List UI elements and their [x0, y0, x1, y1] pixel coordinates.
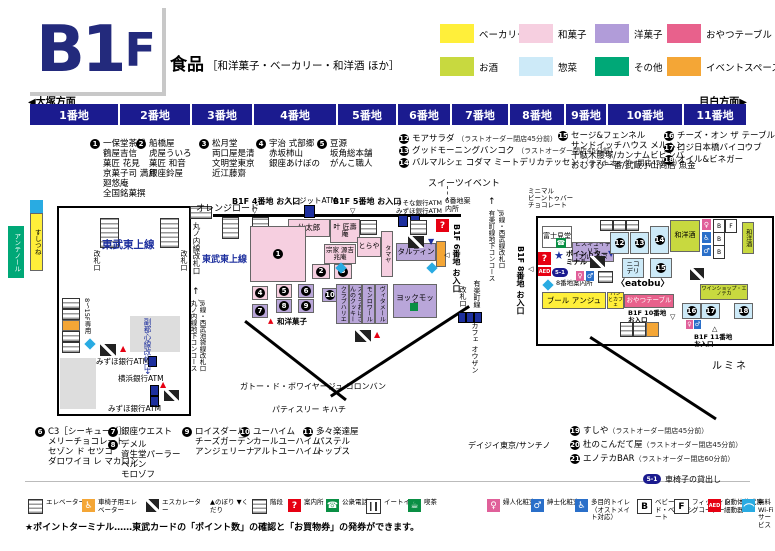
- up-arrow-icon: ↑: [488, 198, 496, 207]
- yurakucho-line-label: 有楽町線: [472, 280, 481, 308]
- escalator-step-icon: [222, 217, 239, 239]
- wifi-icon: [742, 499, 755, 512]
- service-area: [60, 358, 96, 409]
- info-6-label: 6番地案内所: [445, 197, 477, 213]
- yogashi-swatch: [595, 24, 629, 43]
- map-badge-10: 10: [325, 290, 335, 300]
- badge-12: 12: [399, 134, 409, 144]
- takeout-strip: [30, 200, 43, 214]
- down-arrow-icon: ↓: [144, 368, 152, 377]
- banchi-1[interactable]: 1番地: [30, 104, 118, 125]
- gate-icon: [466, 312, 474, 323]
- men-toilet-icon: ♂: [694, 320, 701, 329]
- escalator-icon: [146, 499, 159, 512]
- sweets-event-label: スイーツイベント: [428, 176, 500, 189]
- legend-women: ♀婦人化粧室: [487, 499, 536, 512]
- legend-sake: お酒: [440, 57, 519, 76]
- men-toilet-icon: ♂: [586, 271, 594, 281]
- map-badge-9: 9: [301, 301, 311, 311]
- wayoshu-shop: 和洋酒: [670, 220, 700, 252]
- badge-11: 11: [303, 427, 313, 437]
- footer-divider: [25, 481, 750, 482]
- wagashi-area-5: 5: [276, 284, 292, 298]
- legend-escalator: エスカレーター: [146, 499, 206, 514]
- atm-icon: [150, 385, 159, 396]
- map-badge-6: 6: [301, 286, 311, 296]
- orange-road-label: オレンジロード: [196, 205, 259, 214]
- gate-icon: [458, 312, 466, 323]
- sozai-swatch: [519, 57, 553, 76]
- legend-multi-toilet: ♿多目的トイレ（オストメイト対応）: [575, 499, 635, 522]
- deli-area-12: 12: [610, 232, 629, 254]
- tojo-line-label-2: 東武東上線: [202, 256, 247, 265]
- banchi-7[interactable]: 7番地: [452, 104, 508, 125]
- banchi-4[interactable]: 4番地: [254, 104, 336, 125]
- map-badge-1: 1: [273, 249, 283, 259]
- badge-1: 1: [90, 139, 100, 149]
- legend-wifi: 無料Wi-Fiサービス: [742, 499, 775, 529]
- badge-16: 16: [664, 131, 674, 141]
- banchi-8[interactable]: 8番地: [510, 104, 564, 125]
- banchi-9[interactable]: 9番地: [566, 104, 606, 125]
- map-badge-5: 5: [279, 286, 289, 296]
- map-badge-18: 18: [739, 306, 749, 316]
- legend-men: ♂紳士化粧室: [531, 499, 580, 512]
- entrance-icon: ◁: [444, 252, 449, 259]
- shop-group-4: 4 宇治 式部郷赤坂柿山銀座あけぼの: [256, 139, 320, 169]
- wagashi-area-2: 2: [312, 264, 330, 279]
- legend-oyatsu: おやつテーブル: [667, 24, 775, 43]
- yokumoku-shop: ヨックモック: [393, 284, 437, 318]
- deli-area-18: 18: [734, 303, 753, 319]
- legend-cafe: ☕喫茶: [408, 499, 437, 512]
- cafe-icon: [410, 303, 418, 311]
- fitting-icon: F: [674, 499, 689, 514]
- women-toilet-icon: ♀: [686, 320, 693, 329]
- wine-enoteca-shop: ワインショップ・エノテカ: [700, 284, 748, 300]
- map-badge-16: 16: [687, 306, 697, 316]
- entrance-icon: ▽: [252, 208, 257, 215]
- escalator-step-icon: [633, 322, 646, 337]
- badge-14: 14: [399, 158, 409, 168]
- baby-bed-icon: B: [713, 219, 725, 233]
- boul-ange-shop: ブール アンジュ: [542, 292, 606, 309]
- club-harie-shop: クラブハリエ: [336, 284, 349, 324]
- badge-6: 6: [35, 427, 45, 437]
- badge-4: 4: [256, 139, 266, 149]
- nico-deli-shop: ニコ デリ: [622, 258, 644, 278]
- escalator-step-icon: [62, 309, 80, 320]
- map-badge-15: 15: [656, 263, 666, 273]
- yurakucho-gate-label: 改札口: [458, 286, 467, 307]
- wagashi-swatch: [519, 24, 553, 43]
- escalator-icon: [590, 256, 605, 268]
- escalator-step-icon: [62, 342, 80, 353]
- floor-category: 食品 ［和洋菓子・ベーカリー・和洋酒 ほか］: [170, 50, 399, 75]
- point-terminal-star-icon: ★: [554, 250, 564, 261]
- badge-5: 5: [317, 139, 327, 149]
- banchi-11[interactable]: 11番地: [684, 104, 746, 125]
- stairs-up-icon: ▲: [374, 331, 380, 339]
- badge-3: 3: [199, 139, 209, 149]
- badge-20: 20: [570, 440, 580, 450]
- floor-map-page: B1 F 食品 ［和洋菓子・ベーカリー・和洋酒 ほか］ ベーカリー 和菓子 洋菓…: [0, 0, 775, 551]
- minimal-label: ミニマル ビーントゥバー チョコレート: [528, 188, 573, 209]
- shop-group-7: 7 銀座ウエスト: [108, 427, 172, 437]
- bakery-swatch: [440, 24, 474, 43]
- wheelchair-toilet-icon: ♿: [702, 232, 711, 243]
- phone-icon: ☎: [556, 238, 566, 248]
- sushitsune-shop: すしつね: [30, 213, 43, 271]
- shop-group-17: 17ロジ日本橋バイコウブ: [664, 143, 762, 153]
- mon-loire-shop: モンロワール: [362, 284, 375, 324]
- banchi-5[interactable]: 5番地: [338, 104, 396, 125]
- yogashi-area-7: 7: [252, 304, 268, 318]
- atm-icon: [304, 205, 315, 218]
- badge-15: 15: [558, 131, 568, 141]
- wheelchair-escalator-icon: [62, 320, 80, 331]
- lumine-label: ルミネ: [712, 362, 748, 371]
- elevator-8-15-label: 8～15F専用: [82, 298, 91, 334]
- wagashi-area-4: 4: [252, 286, 268, 300]
- legend-elevator: エレベーター: [28, 499, 85, 514]
- mizuho-atm-label: みずほ銀行ATM: [108, 404, 161, 413]
- stairs-up-icon: ▲: [160, 381, 166, 389]
- jr-seibu-gate-label-2: JR線・西武線改札口: [496, 210, 505, 295]
- yogashi-area-6: 6: [298, 284, 314, 298]
- aed-icon: AED: [538, 267, 551, 276]
- up-arrow-icon: ↑: [192, 288, 200, 297]
- stairs-icon: [252, 499, 267, 514]
- deli-area-13: 13: [630, 232, 649, 254]
- escalator-step-icon: [62, 298, 80, 309]
- phone-icon: ☎: [326, 499, 339, 512]
- antenor-shop: アンテノール: [8, 226, 24, 278]
- stairs-up-icon: ▲: [120, 345, 126, 353]
- deli-area-15: 15: [650, 258, 672, 278]
- legend-sozai: 惣菜: [519, 57, 595, 76]
- legend-phone: ☎公衆電話: [326, 499, 368, 512]
- escalator-icon: [164, 390, 179, 401]
- legend-other: その他: [595, 57, 667, 76]
- fukutoshin-gate-label: 副都心線改札口: [143, 318, 152, 371]
- map-badge-12: 12: [615, 238, 625, 248]
- stairs-icon: [613, 220, 626, 231]
- legend-yogashi: 洋菓子: [595, 24, 667, 43]
- cafe-ohzan-label: カフェ オウザン: [470, 322, 479, 373]
- entrance-5-label: B1F 5番地 お入口: [333, 197, 401, 206]
- back-area: [130, 316, 180, 352]
- shop-group-11: 11 多々楽達屋パステルトップス: [303, 427, 359, 457]
- escalator-icon: [690, 268, 704, 280]
- badge-2: 2: [136, 139, 146, 149]
- down-escalator-icon: ▼: [428, 238, 434, 246]
- diagonal-wall: [589, 336, 716, 420]
- legend-wc-elevator: ♿車椅子用エレベーター: [82, 499, 142, 514]
- escalator-step-icon: [360, 220, 377, 235]
- banchi-10[interactable]: 10番地: [608, 104, 682, 125]
- badge-18: 18: [664, 155, 674, 165]
- jr-seibu-gate-label: JR線・西武池袋線改札口: [197, 300, 206, 385]
- minamoto-kitchoan-shop: 宗家 源吉兆庵: [324, 244, 356, 264]
- wheelchair-escalator-icon: [646, 322, 659, 337]
- entrance-8-label: B1F 8番地 お入口: [516, 246, 525, 301]
- map-badge-2: 2: [316, 267, 326, 277]
- eat-in-icon: [366, 499, 381, 514]
- escalator-icon: [408, 236, 424, 248]
- other-swatch: [595, 57, 629, 76]
- wheelchair-elevator-icon: ♿: [82, 499, 95, 512]
- ticket-gate-left-label: 改札口: [92, 250, 101, 271]
- aed-icon: AED: [708, 499, 721, 512]
- badge-19: 19: [570, 426, 580, 436]
- banchi-2[interactable]: 2番地: [120, 104, 190, 125]
- tojo-line-label: 東武東上線: [102, 241, 155, 250]
- entrance-icon: ▽: [350, 208, 355, 215]
- women-toilet-icon: ♀: [702, 219, 711, 230]
- men-toilet-icon: ♂: [702, 245, 711, 256]
- banchi-3[interactable]: 3番地: [192, 104, 252, 125]
- banchi-6[interactable]: 6番地: [398, 104, 450, 125]
- entrance-icon: △: [712, 326, 717, 333]
- baby-bed-icon: B: [637, 499, 652, 514]
- map-badge-14: 14: [655, 235, 665, 245]
- shop-group-12: 12 モアサラダ （ラストオーダー閉店45分前）: [399, 134, 557, 144]
- badge-17: 17: [664, 143, 674, 153]
- women-toilet-icon: ♀: [576, 271, 584, 281]
- oyatsu-table-shop: おやつテーブル: [624, 294, 674, 308]
- legend-stairs: 階段: [252, 499, 283, 514]
- kihachi-label: パティスリー キハチ: [272, 405, 346, 414]
- deli-area-14: 14: [650, 226, 669, 254]
- badge-7: 7: [108, 427, 118, 437]
- stairs-icon: [600, 220, 613, 231]
- cafe-icon: ☕: [408, 499, 421, 512]
- information-icon: ?: [436, 219, 449, 232]
- atm-icon: [398, 215, 408, 227]
- legend-information: ?案内所: [288, 499, 324, 512]
- kano-shojuan-shop: 叶 匠壽庵: [330, 219, 360, 243]
- wagashi-note-label: 和洋菓子: [277, 317, 307, 326]
- badge-10: 10: [240, 427, 250, 437]
- badge-13: 13: [399, 146, 409, 156]
- wheelchair-lend-badge: 5-1: [552, 268, 568, 277]
- map-badge-4: 4: [255, 288, 265, 298]
- wittamer-shop: ヴィタメール: [375, 284, 388, 324]
- deli-area-17: 17: [701, 303, 720, 319]
- deli-area-16: 16: [682, 303, 701, 319]
- event-swatch: [667, 57, 701, 76]
- floor-number: B1: [36, 18, 123, 82]
- yogashi-area-9: 9: [298, 299, 314, 313]
- information-icon: ?: [538, 252, 551, 265]
- yurakucho-concourse-label: 有楽町線地下コンコース: [486, 210, 495, 295]
- wagashi-area-1: 1: [250, 226, 306, 282]
- entrance-6-label: B1F 6番地 お入口: [452, 224, 461, 284]
- pain-cafe-shop: パンとカフェ: [607, 292, 624, 309]
- baby-bed-icon: B: [713, 245, 725, 259]
- shop-group-8: 8 デメル資生堂パーラーベルンモロゾフ: [108, 440, 181, 480]
- shop-group-20: 20 杜のこんだて屋（ラストオーダー閉店45分前）: [570, 440, 742, 450]
- wheelchair-lend-label: 車椅子の貸出し: [665, 474, 721, 485]
- men-icon: ♂: [531, 499, 544, 512]
- shop-group-16: 16チーズ・オン ザ テーブル: [664, 131, 775, 141]
- oyatsu-swatch: [667, 24, 701, 43]
- legend-wagashi: 和菓子: [519, 24, 595, 43]
- entrance-icon: ▽: [670, 314, 675, 321]
- yogashi-area-8: 8: [276, 299, 292, 313]
- shop-group-2: 2 船橋屋虎屋ういろ菓匠 和音銀座鈴屋: [136, 139, 192, 179]
- escalator-step-icon: [620, 322, 633, 337]
- information-icon: ?: [288, 499, 301, 512]
- tamaya-shop: タマヤ: [381, 231, 393, 277]
- gateau-voyage-label: ガトー・ド・ボワイヤージュ コロンバン: [240, 382, 386, 391]
- escalator-icon: [100, 344, 116, 356]
- eatobu-label: 〈eatobu〉: [616, 280, 670, 289]
- badge-8: 8: [108, 440, 118, 450]
- stairs-icon: [160, 218, 179, 248]
- stairs-icon: [626, 220, 639, 231]
- wagashi-note-icon: ▲: [268, 318, 273, 325]
- shop-group-19: 19 すしや（ラストオーダー閉店45分前）: [570, 426, 708, 436]
- toraya-shop: とらや: [357, 237, 381, 257]
- wayoshu-strip: 和洋酒: [742, 222, 754, 254]
- point-terminal-note: ★ポイントターミナル……東武カードの「ポイント数」の確認と「お買物券」の発券がで…: [25, 520, 419, 533]
- marunouchi-gate-label: 丸ノ内線改札口: [192, 222, 201, 275]
- stella-shop: ステラおばさんのクッキー: [349, 284, 362, 324]
- sake-swatch: [440, 57, 474, 76]
- floor-title: B1 F: [30, 8, 166, 96]
- legend-updown: ▲のぼり ▼くだり: [210, 499, 254, 514]
- entrance-icon: ◁: [528, 266, 533, 273]
- multi-toilet-icon: ♿: [575, 499, 588, 512]
- legend-bakery: ベーカリー: [440, 24, 519, 43]
- category-color-legend: ベーカリー 和菓子 洋菓子 おやつテーブル お酒 惣菜 その他 イベントスペース: [440, 24, 775, 76]
- badge-9: 9: [182, 427, 192, 437]
- ticket-gate-right-label: 改札口: [179, 250, 188, 271]
- elevator-icon: [28, 499, 43, 514]
- badge-21: 21: [570, 454, 580, 464]
- credit-atm-label: クレジットATM: [284, 196, 337, 205]
- escalator-step-icon: [410, 220, 427, 235]
- map-badge-7: 7: [255, 306, 265, 316]
- women-icon: ♀: [487, 499, 500, 512]
- fitting-icon: F: [725, 219, 737, 233]
- yokohama-atm-label: 横浜銀行ATM: [118, 374, 164, 383]
- shop-group-18: 18オイル&ビネガー: [664, 155, 743, 165]
- shop-group-5: 5 豆源坂角総本舗がんこ職人: [317, 139, 373, 169]
- map-badge-13: 13: [635, 238, 645, 248]
- map-badge-17: 17: [706, 306, 716, 316]
- escalator-step-icon: [62, 331, 80, 342]
- mizuho-atm-label: みずほ銀行ATM: [96, 357, 149, 366]
- escalator-icon: [355, 330, 371, 342]
- gate-icon: [474, 312, 482, 323]
- daisy-label: デイジイ東京/サンチノ: [468, 440, 550, 451]
- marunouchi-concourse-label: 丸ノ内線地下コンコース: [188, 300, 197, 385]
- legend-event: イベントスペース: [667, 57, 775, 76]
- baby-bed-icon: B: [713, 232, 725, 246]
- entrance-11-label: B1F 11番地 お入口: [694, 334, 738, 348]
- map-badge-8: 8: [279, 301, 289, 311]
- category-detail: ［和洋菓子・ベーカリー・和洋酒 ほか］: [207, 58, 399, 75]
- shop-group-3: 3 松月堂両口屋是清文明堂東京近江藤齋: [199, 139, 255, 179]
- category-title: 食品: [170, 50, 204, 75]
- shop-group-21: 21 エノテカBAR（ラストオーダー閉店60分前）: [570, 454, 734, 464]
- stairs-icon: [598, 271, 613, 283]
- wheelchair-lend-badge-legend: 5-1: [643, 474, 661, 484]
